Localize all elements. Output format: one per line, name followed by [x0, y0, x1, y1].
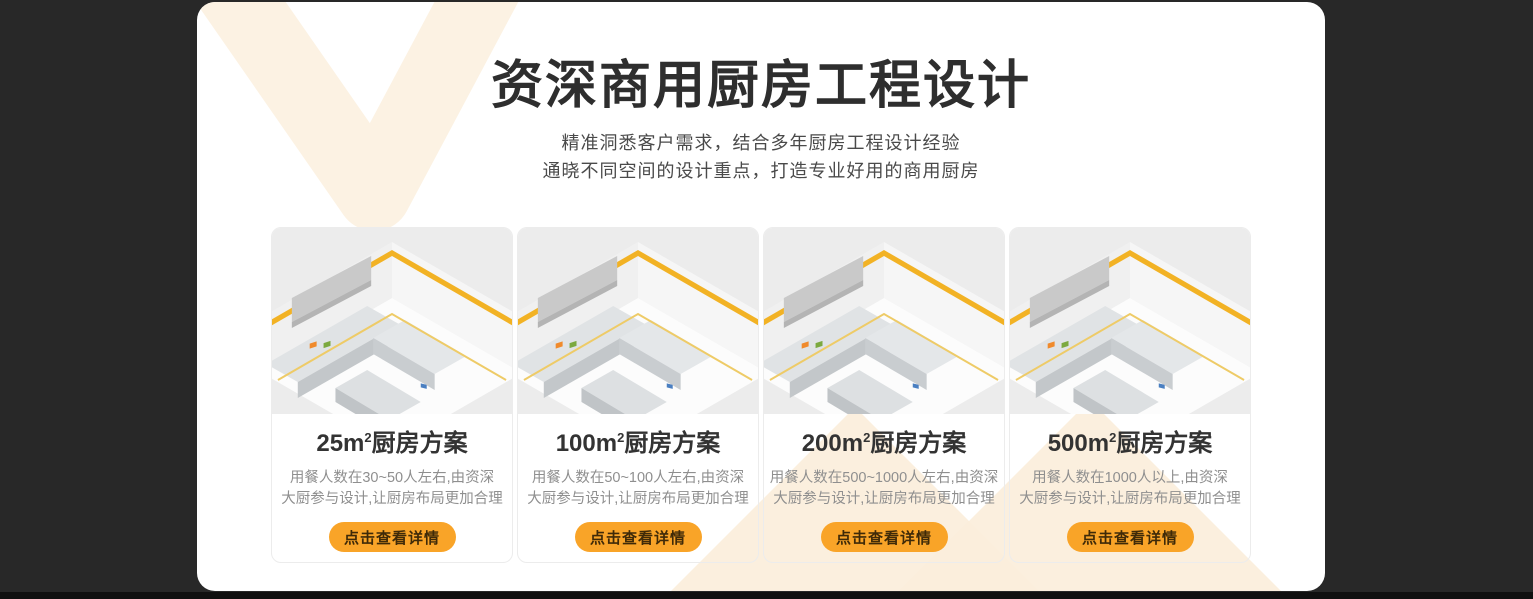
- page-title: 资深商用厨房工程设计: [197, 58, 1325, 115]
- content-panel: 资深商用厨房工程设计 精准洞悉客户需求，结合多年厨房工程设计经验 通晓不同空间的…: [197, 2, 1325, 591]
- card-area: 100m: [556, 430, 617, 457]
- hero-section: 资深商用厨房工程设计 精准洞悉客户需求，结合多年厨房工程设计经验 通晓不同空间的…: [197, 58, 1325, 185]
- kitchen-render-image: [764, 228, 1004, 414]
- page-subtitle: 精准洞悉客户需求，结合多年厨房工程设计经验 通晓不同空间的设计重点，打造专业好用…: [197, 129, 1325, 185]
- card-description: 用餐人数在1000人以上,由资深 大厨参与设计,让厨房布局更加合理: [1019, 468, 1241, 510]
- card-area: 200m: [802, 430, 863, 457]
- card-description: 用餐人数在50~100人左右,由资深 大厨参与设计,让厨房布局更加合理: [527, 468, 749, 510]
- card-title-suffix: 厨房方案: [372, 430, 468, 457]
- view-details-button[interactable]: 点击查看详情: [821, 522, 948, 552]
- view-details-button[interactable]: 点击查看详情: [575, 522, 702, 552]
- kitchen-render-image: [272, 228, 512, 414]
- kitchen-render-image: [1010, 228, 1250, 414]
- card-title: 200m2厨房方案: [802, 430, 967, 459]
- card-title: 100m2厨房方案: [556, 430, 721, 459]
- page-subtitle-line1: 精准洞悉客户需求，结合多年厨房工程设计经验: [197, 129, 1325, 157]
- card-title: 25m2厨房方案: [316, 430, 467, 459]
- kitchen-plan-card-25m2: 25m2厨房方案 用餐人数在30~50人左右,由资深 大厨参与设计,让厨房布局更…: [271, 227, 513, 563]
- footer-divider-bar: [0, 592, 1533, 599]
- card-description: 用餐人数在30~50人左右,由资深 大厨参与设计,让厨房布局更加合理: [281, 468, 503, 510]
- card-title-suffix: 厨房方案: [624, 430, 720, 457]
- view-details-button[interactable]: 点击查看详情: [1067, 522, 1194, 552]
- kitchen-render-image: [518, 228, 758, 414]
- view-details-button[interactable]: 点击查看详情: [329, 522, 456, 552]
- card-area-sup: 2: [364, 430, 371, 445]
- card-title: 500m2厨房方案: [1048, 430, 1213, 459]
- card-area: 25m: [316, 430, 364, 457]
- card-description: 用餐人数在500~1000人左右,由资深 大厨参与设计,让厨房布局更加合理: [770, 468, 998, 510]
- card-title-suffix: 厨房方案: [870, 430, 966, 457]
- kitchen-plan-card-200m2: 200m2厨房方案 用餐人数在500~1000人左右,由资深 大厨参与设计,让厨…: [763, 227, 1005, 563]
- card-title-suffix: 厨房方案: [1116, 430, 1212, 457]
- card-area: 500m: [1048, 430, 1109, 457]
- kitchen-plan-card-500m2: 500m2厨房方案 用餐人数在1000人以上,由资深 大厨参与设计,让厨房布局更…: [1009, 227, 1251, 563]
- kitchen-plan-cards-row: 25m2厨房方案 用餐人数在30~50人左右,由资深 大厨参与设计,让厨房布局更…: [197, 227, 1325, 563]
- kitchen-plan-card-100m2: 100m2厨房方案 用餐人数在50~100人左右,由资深 大厨参与设计,让厨房布…: [517, 227, 759, 563]
- page-subtitle-line2: 通晓不同空间的设计重点，打造专业好用的商用厨房: [197, 157, 1325, 185]
